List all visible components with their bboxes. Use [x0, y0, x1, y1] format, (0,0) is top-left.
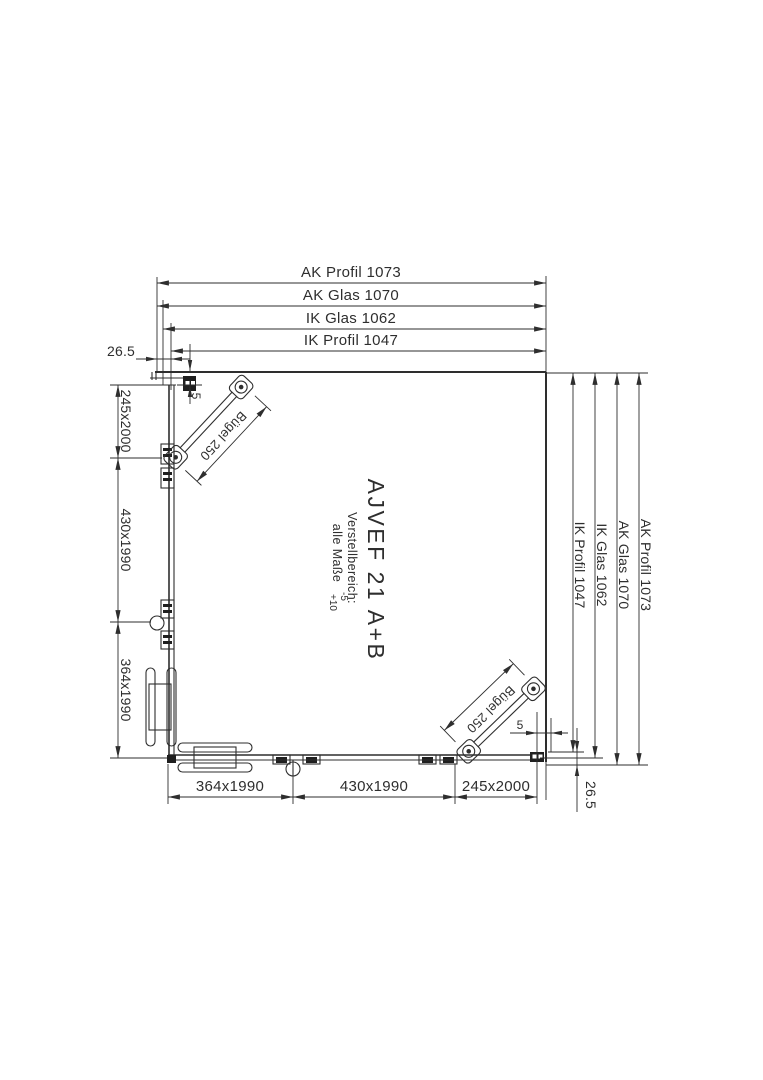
brace-top-left-label: Bügel 250: [197, 409, 250, 464]
drawing-page: Bügel 250 Bügel 250 AK Profil 1073 AK Gl…: [0, 0, 763, 1080]
dim-ak-profil-top: AK Profil 1073: [301, 264, 401, 281]
brace-top-left: Bügel 250: [162, 374, 275, 491]
offset-top-left-label: 26.5: [107, 343, 135, 359]
dimension-offset-top-left: 26.5: [107, 343, 190, 361]
dim-left-430x1990: 430x1990: [118, 508, 134, 571]
model-title: AJVEF 21 A+B: [363, 479, 389, 662]
dim-ik-glas-top: IK Glas 1062: [306, 310, 396, 327]
dim-ak-glas-right: AK Glas 1070: [616, 521, 632, 610]
dim-ak-profil-right: AK Profil 1073: [638, 519, 654, 611]
dim-ik-glas-right: IK Glas 1062: [594, 523, 610, 606]
dim-bottom-245x2000: 245x2000: [462, 778, 530, 795]
dim-left-364x1990: 364x1990: [118, 658, 134, 721]
dim-ak-glas-top: AK Glas 1070: [303, 287, 399, 304]
dim-bottom-364x1990: 364x1990: [196, 778, 264, 795]
left-panel-connector: [161, 444, 174, 488]
left-panel-hinge: [150, 600, 174, 649]
dim-left-245x2000: 245x2000: [118, 389, 134, 452]
dimension-gap-bottom-right: 5: [510, 718, 568, 752]
dimensions-left: 245x2000 430x1990 364x1990: [110, 385, 176, 758]
dim-ik-profil-right: IK Profil 1047: [572, 522, 588, 609]
dim-ik-profil-top: IK Profil 1047: [304, 332, 398, 349]
bottom-panel-hinge: [273, 755, 320, 776]
bottom-door-handle: [178, 743, 252, 772]
offset-bottom-right-label: 26.5: [583, 781, 599, 809]
gap-top-left-label: 5: [189, 393, 203, 400]
corner-fitting-bottom-left: [167, 755, 176, 763]
technical-drawing: Bügel 250 Bügel 250 AK Profil 1073 AK Gl…: [0, 0, 763, 1080]
dim-bottom-430x1990: 430x1990: [340, 778, 408, 795]
dimension-gap-top-left: 5: [177, 344, 203, 404]
bottom-glass-panel: [168, 755, 540, 760]
brace-bottom-right-label: Bügel 250: [464, 683, 518, 736]
tolerance-plus: +10: [327, 594, 338, 611]
note-line1: Verstellbereich:: [345, 512, 359, 604]
brace-bottom-right: Bügel 250: [435, 655, 547, 765]
left-door-handle: [146, 668, 176, 746]
gap-bottom-right-label: 5: [517, 718, 524, 732]
drawing-title-block: AJVEF 21 A+B Verstellbereich: alle Maße …: [327, 479, 389, 662]
tolerance-minus: -5: [338, 592, 349, 601]
note-line2: alle Maße: [330, 524, 344, 582]
dimensions-right: IK Profil 1047 IK Glas 1062 AK Glas 1070…: [540, 373, 654, 765]
